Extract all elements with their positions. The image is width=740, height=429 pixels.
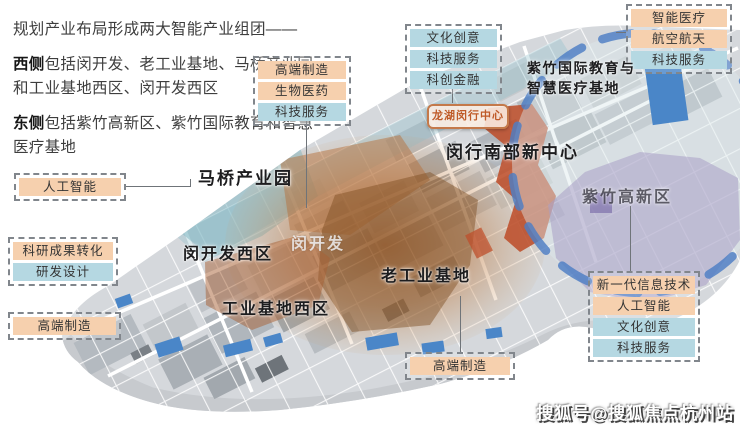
leader-right-tags xyxy=(630,206,631,271)
tag-item: 科技服务 xyxy=(593,339,695,357)
tag-item: 新一代信息技术 xyxy=(593,276,695,294)
tag-item: 高端制造 xyxy=(410,357,510,375)
longhu-minhang-center-badge: 龙湖闵行中心 xyxy=(427,104,509,129)
leader-ai-elbow xyxy=(190,179,191,187)
tag-item: 科技服务 xyxy=(258,103,346,121)
intro-west-label: 西侧 xyxy=(13,56,45,73)
tag-group-maqiao: 高端制造 生物医药 科技服务 xyxy=(253,56,351,126)
tag-item: 高端制造 xyxy=(258,61,346,79)
leader-right-top xyxy=(616,32,626,33)
leader-ai xyxy=(126,186,190,187)
tag-item: 科研成果转化 xyxy=(13,242,113,260)
tag-item: 高端制造 xyxy=(13,317,116,335)
label-minkaifa: 闵开发 xyxy=(291,230,345,254)
label-zizhu-hitech: 紫竹高新区 xyxy=(582,183,672,207)
tag-group-center-top: 文化创意 科技服务 科创金融 xyxy=(405,24,502,94)
tag-item: 文化创意 xyxy=(410,29,497,47)
tag-item: 人工智能 xyxy=(19,178,121,196)
intro-east-label: 东侧 xyxy=(13,115,45,132)
tag-item: 科技服务 xyxy=(410,50,497,68)
tag-group-right-top: 智能医疗 航空航天 科技服务 xyxy=(626,4,732,74)
sohu-watermark: 搜狐号@搜狐焦点杭州站 xyxy=(536,399,734,424)
tag-item: 航空航天 xyxy=(631,30,727,48)
leader-maqiao-tags xyxy=(306,114,307,208)
tag-item: 研发设计 xyxy=(13,263,113,281)
tag-item: 科创金融 xyxy=(410,71,497,89)
tag-item: 科技服务 xyxy=(631,51,727,69)
label-minkaifa-west: 闵开发西区 xyxy=(183,240,273,264)
tag-item: 人工智能 xyxy=(593,297,695,315)
label-south-new-center: 闵行南部新中心 xyxy=(446,138,579,163)
intro-title: 规划产业布局形成两大智能产业组团—— xyxy=(13,18,325,42)
tag-group-right-side: 新一代信息技术 人工智能 文化创意 科技服务 xyxy=(588,271,700,362)
planning-map-page: 规划产业布局形成两大智能产业组团—— 西侧包括闵开发、老工业基地、马桥产业园和工… xyxy=(0,0,740,429)
tag-item: 智能医疗 xyxy=(631,9,727,27)
label-old-industry-base: 老工业基地 xyxy=(381,262,471,286)
tag-group-left-manufacturing: 高端制造 xyxy=(8,312,121,340)
tag-item: 生物医药 xyxy=(258,82,346,100)
label-industry-base-west: 工业基地西区 xyxy=(222,295,330,319)
label-maqiao-park: 马桥产业园 xyxy=(198,164,293,189)
tag-item: 文化创意 xyxy=(593,318,695,336)
label-zizhu-edu-base: 紫竹国际教育与 智慧医疗基地 xyxy=(527,58,636,98)
leader-bottom-manu xyxy=(460,296,461,352)
tag-group-left-ai: 人工智能 xyxy=(14,173,126,201)
tag-group-bottom-manufacturing: 高端制造 xyxy=(405,352,515,380)
tag-group-left-research: 科研成果转化 研发设计 xyxy=(8,237,118,286)
